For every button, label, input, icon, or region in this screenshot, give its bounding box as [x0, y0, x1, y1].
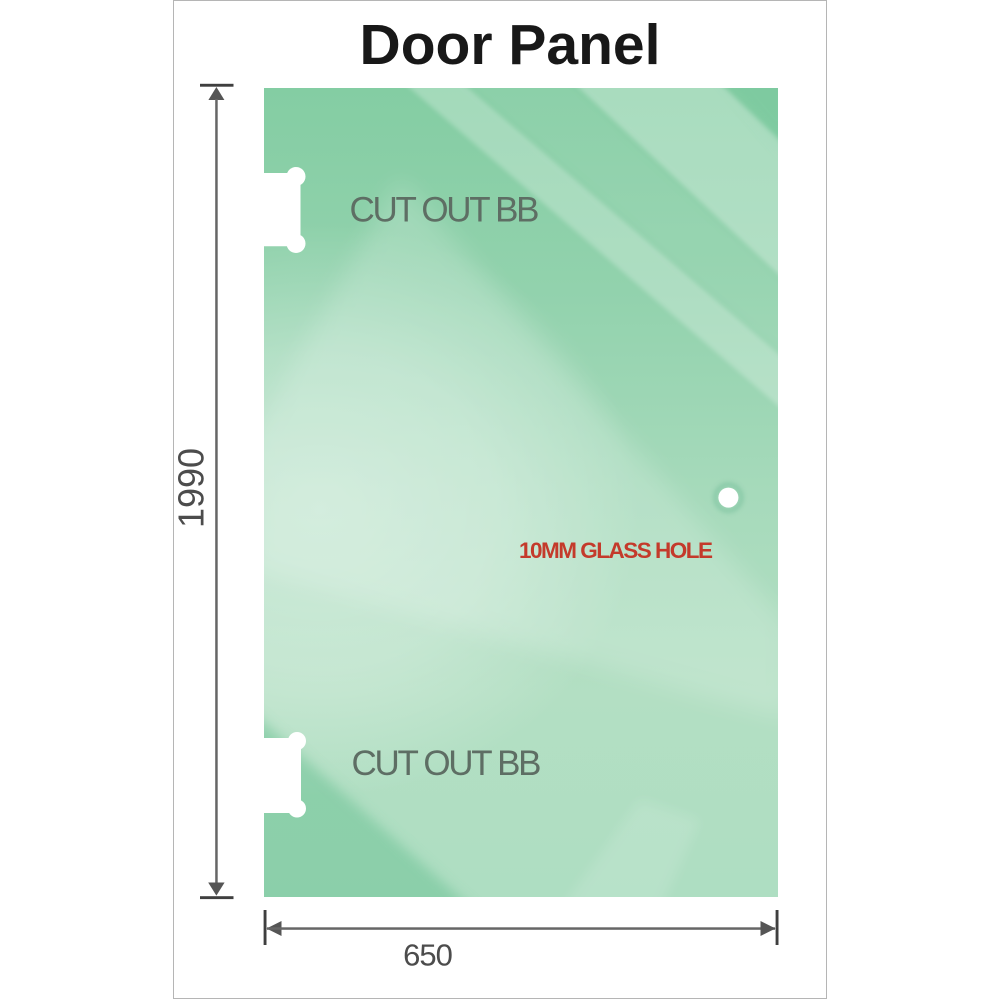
- svg-text:1990: 1990: [171, 448, 212, 528]
- svg-text:CUT OUT BB: CUT OUT BB: [352, 744, 541, 783]
- svg-text:Door Panel: Door Panel: [360, 13, 661, 77]
- svg-text:CUT OUT BB: CUT OUT BB: [350, 191, 539, 230]
- svg-text:10MM GLASS HOLE: 10MM GLASS HOLE: [519, 538, 713, 563]
- svg-text:650: 650: [403, 937, 452, 972]
